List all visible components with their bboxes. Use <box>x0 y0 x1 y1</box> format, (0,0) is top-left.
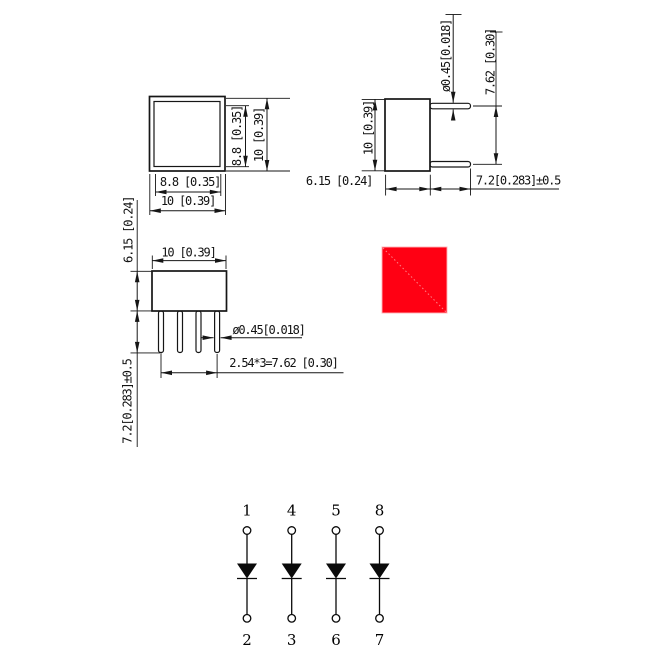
side-lead-length-label: 7.2[0.283]±0.5 <box>476 174 561 188</box>
terminal-bottom-4 <box>376 615 384 623</box>
side-depth-label: 6.15 [0.24] <box>306 174 372 188</box>
side-lead-span-label: 7.62 [0.30] <box>484 29 498 95</box>
top-lead-dia-label: ø0.45[0.018] <box>232 323 304 337</box>
pin-number-top-4: 8 <box>375 502 385 520</box>
front-height-outer-label: 10 [0.39] <box>252 108 266 162</box>
terminal-top-1 <box>243 527 251 535</box>
pin-number-top-3: 5 <box>331 502 341 520</box>
lead-pin-4 <box>215 311 220 353</box>
pin-number-bottom-1: 2 <box>242 631 252 649</box>
lead-pin-2 <box>178 311 183 353</box>
front-height-inner-label: 8.8 [0.35] <box>230 106 244 166</box>
top-view-dimensions: 10 [0.39] ø0.45[0.018] 2.54*3=7.62 [0.30… <box>121 197 344 447</box>
datasheet-drawing: 8.8 [0.35] 10 [0.39] 8.8 [0.35] 10 [0.39… <box>0 0 662 664</box>
diode-triangle-2 <box>282 564 302 579</box>
top-lead-length-label: 7.2[0.283]±0.5 <box>121 358 135 443</box>
diode-triangle-1 <box>237 564 257 579</box>
pin-number-top-1: 1 <box>242 502 252 520</box>
lead-pin-3 <box>196 311 201 353</box>
front-width-outer-label: 10 [0.39] <box>161 194 215 208</box>
terminal-top-2 <box>288 527 296 535</box>
diode-2: 4 3 <box>282 502 302 650</box>
side-lead-dia-label: ø0.45[0.018] <box>439 20 453 92</box>
pin-number-bottom-2: 3 <box>287 631 297 649</box>
front-width-inner-label: 8.8 [0.35] <box>160 175 220 189</box>
terminal-bottom-2 <box>288 615 296 623</box>
diode-1: 1 2 <box>237 502 257 650</box>
circuit-schematic: 1 2 4 3 5 6 <box>237 502 390 650</box>
diode-4: 8 7 <box>370 502 390 650</box>
pin-number-top-2: 4 <box>287 502 297 520</box>
terminal-bottom-1 <box>243 615 251 623</box>
side-lead-bottom <box>430 162 471 168</box>
diode-triangle-4 <box>370 564 390 579</box>
top-width-label: 10 [0.39] <box>161 246 215 260</box>
side-height-label: 10 [0.39] <box>361 101 375 155</box>
terminal-bottom-3 <box>332 615 340 623</box>
lead-pin-1 <box>159 311 164 353</box>
diode-triangle-3 <box>326 564 346 579</box>
front-emitting-face-outline <box>154 102 220 167</box>
top-depth-label: 6.15 [0.24] <box>122 197 136 263</box>
top-lead-pitch-label: 2.54*3=7.62 [0.30] <box>229 356 337 370</box>
side-body-outline <box>385 99 430 171</box>
terminal-top-3 <box>332 527 340 535</box>
top-view: 10 [0.39] ø0.45[0.018] 2.54*3=7.62 [0.30… <box>121 197 344 447</box>
front-view: 8.8 [0.35] 10 [0.39] 8.8 [0.35] 10 [0.39… <box>150 97 291 216</box>
pin-number-bottom-3: 6 <box>331 631 341 649</box>
mechanical-drawing-canvas: 8.8 [0.35] 10 [0.39] 8.8 [0.35] 10 [0.39… <box>0 0 662 664</box>
side-view: ø0.45[0.018] 7.62 [0.30] 10 [0.39] 6.15 … <box>306 15 561 196</box>
terminal-top-4 <box>376 527 384 535</box>
diode-3: 5 6 <box>326 502 346 650</box>
top-body-outline <box>152 271 227 311</box>
pin-number-bottom-4: 7 <box>375 631 385 649</box>
side-lead-top <box>430 103 471 109</box>
led-color-swatch <box>382 247 447 313</box>
